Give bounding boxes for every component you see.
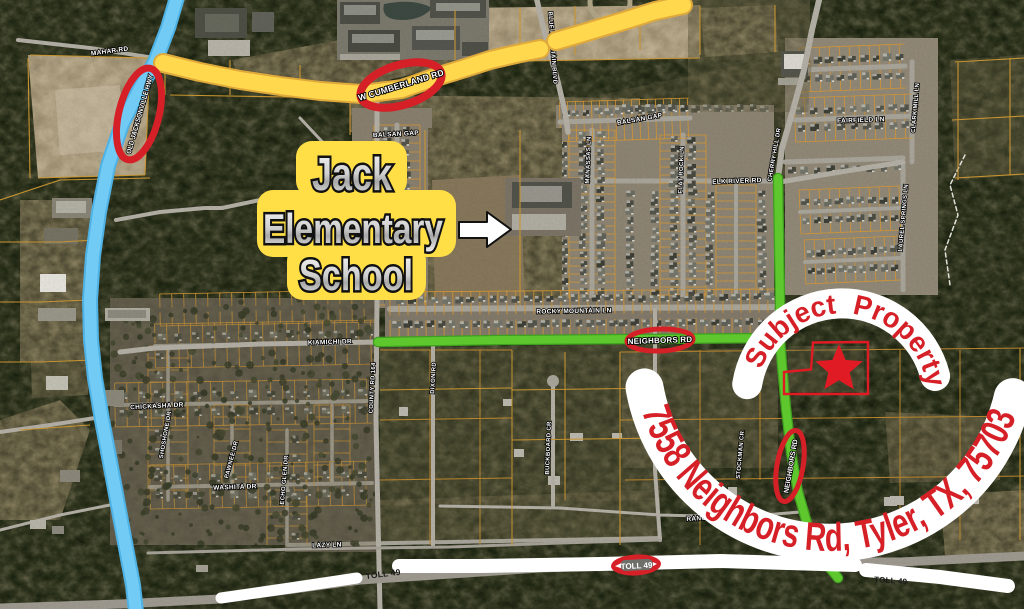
svg-text:Jack: Jack: [312, 148, 392, 200]
svg-text:Elementary: Elementary: [263, 205, 444, 252]
svg-text:ROCKY MOUNTAIN LN: ROCKY MOUNTAIN LN: [536, 307, 611, 315]
svg-text:LAZY LN: LAZY LN: [312, 541, 342, 549]
svg-text:School: School: [299, 251, 413, 300]
svg-text:TOLL 49: TOLL 49: [620, 561, 653, 572]
